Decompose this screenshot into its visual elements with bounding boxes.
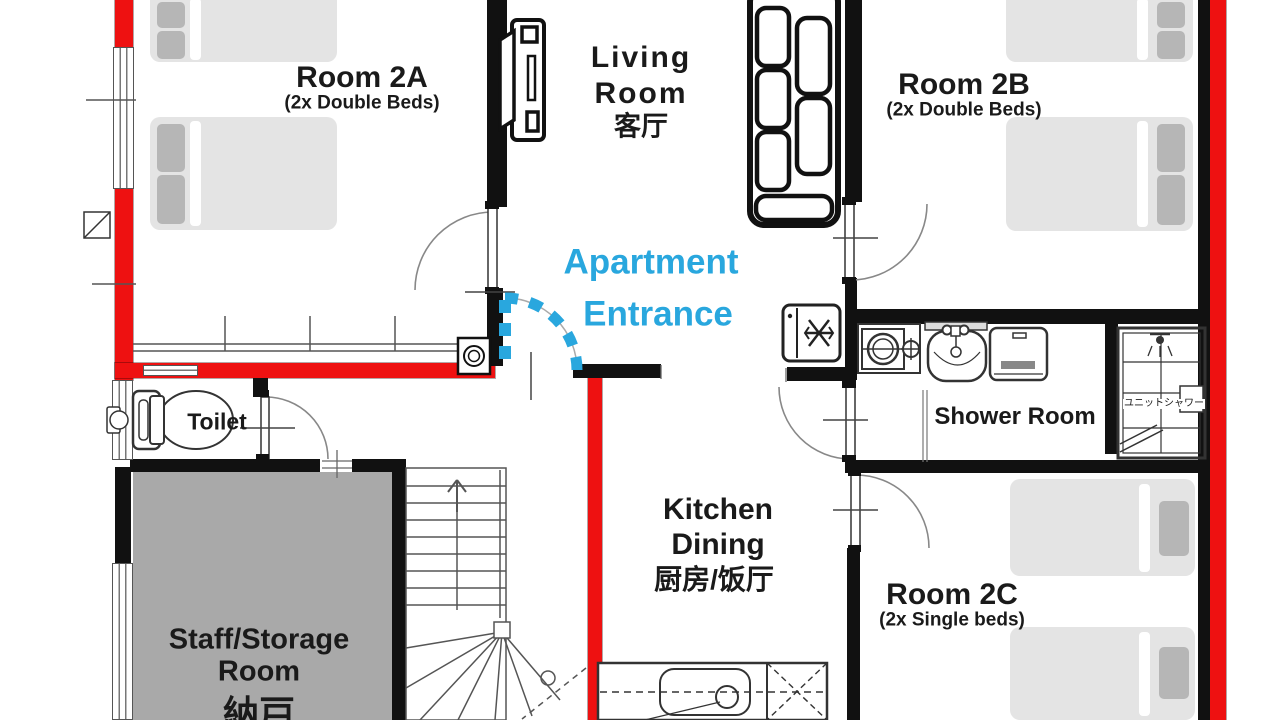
opening-markers (322, 365, 786, 478)
partition-line (923, 390, 927, 462)
apartment-entrance-label-2: Entrance (583, 297, 733, 332)
room2b-subtitle: (2x Double Beds) (886, 101, 1041, 120)
stairs-up-arrow-icon (448, 480, 466, 512)
room2c-label: Room 2C (886, 580, 1018, 610)
shower-room-label: Shower Room (934, 405, 1095, 429)
floor-plan: Room 2A (2x Double Beds) Living Room 客厅 … (0, 0, 1280, 720)
living-room-label-1: Living (591, 43, 691, 73)
dryer-icon (990, 328, 1047, 380)
room2a-label: Room 2A (296, 63, 428, 93)
stairs-icon (406, 468, 586, 720)
door-swing-room2a (415, 201, 515, 294)
storage-label-2: Room (218, 658, 300, 687)
storage-label-cjk: 納戸 (223, 696, 295, 720)
kitchen-counter-icon (598, 663, 827, 720)
unit-shower-label: ユニットシャワー (1123, 399, 1205, 409)
kitchen-label-2: Dining (671, 530, 764, 560)
door-swing-toilet (240, 390, 328, 461)
refrigerator-icon (783, 305, 840, 361)
door-swing-shower (779, 380, 868, 462)
living-room-label-2: Room (595, 79, 688, 109)
kitchen-label-cjk: 厨房/饭厅 (654, 566, 774, 594)
sink-icon (925, 322, 987, 381)
toilet-label: Toilet (187, 411, 247, 434)
vent-icon (84, 212, 110, 238)
room2b-label: Room 2B (898, 70, 1030, 100)
door-swing-room2b (833, 197, 927, 284)
shower-head-icon (1148, 334, 1172, 357)
room2a-subtitle: (2x Double Beds) (284, 94, 439, 113)
sofa-icon (750, 0, 838, 225)
entrance-door-icon (505, 298, 577, 400)
shoe-cabinet-icon (458, 338, 490, 374)
tv-icon (500, 20, 544, 140)
washing-machine-icon (858, 324, 921, 373)
storage-label-1: Staff/Storage (169, 626, 349, 655)
closet-partition (86, 100, 483, 351)
apartment-entrance-label-1: Apartment (563, 245, 738, 280)
shower-unit-icon (1118, 328, 1205, 458)
room2c-subtitle: (2x Single beds) (879, 611, 1025, 630)
kitchen-label-1: Kitchen (663, 495, 773, 525)
living-room-label-cjk: 客厅 (614, 114, 668, 141)
door-swing-room2c (833, 468, 929, 552)
